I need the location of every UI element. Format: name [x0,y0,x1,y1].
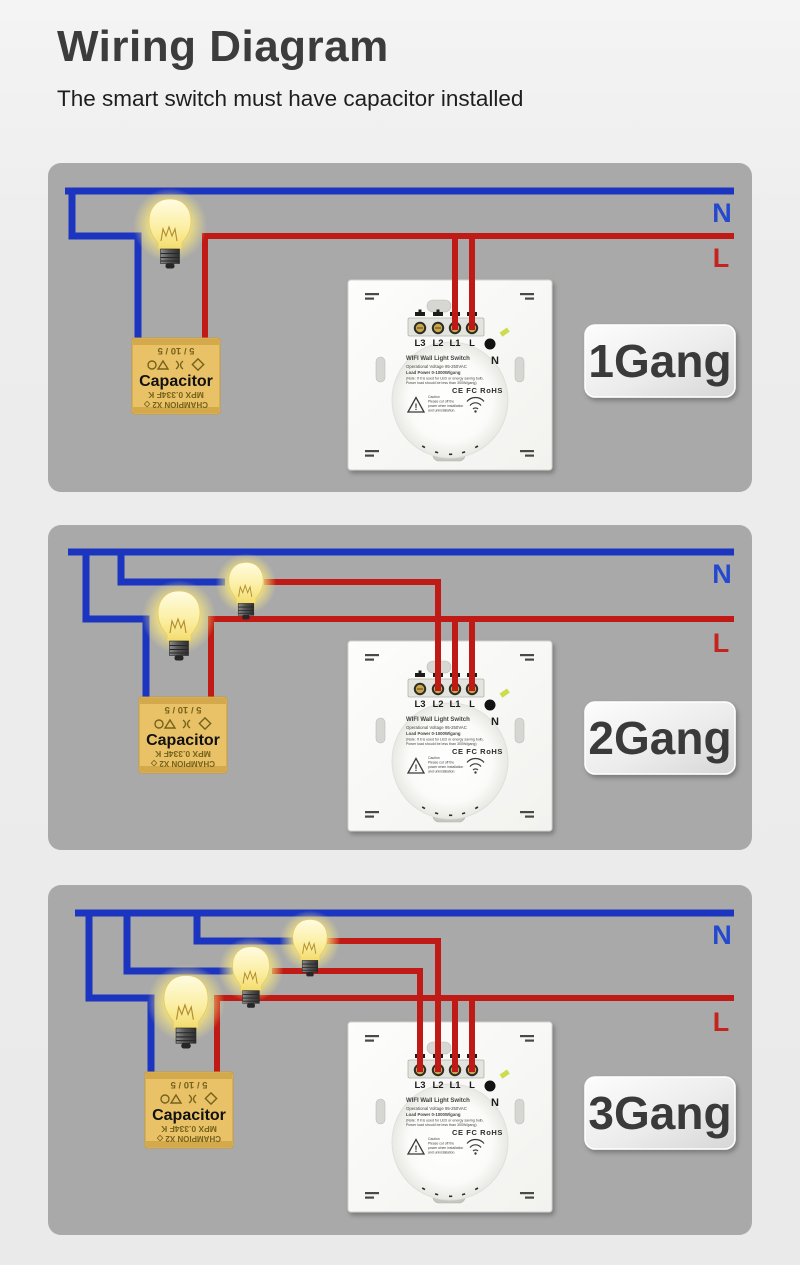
wiring-diagram-canvas: 5 / 10 / 5 Capacitor MPX 0.334F K CHAMPI… [0,0,800,1265]
neutral-label: N [712,920,732,950]
smart-switch [348,641,552,831]
gang-badge-label: 3Gang [588,1087,731,1139]
panel-2gang: N L 2Gang [48,525,752,850]
capacitor [132,338,220,414]
live-label: L [713,1007,730,1037]
gang-badge-label: 1Gang [588,335,731,387]
live-label: L [713,628,730,658]
capacitor [139,697,227,773]
gang-badge-label: 2Gang [588,712,731,764]
neutral-label: N [712,559,732,589]
gang-badge: 1Gang [585,325,735,397]
gang-badge: 2Gang [585,702,735,774]
gang-badge: 3Gang [585,1077,735,1149]
capacitor [145,1072,233,1148]
panel-1gang: N L 1Gang [48,163,752,492]
live-label: L [713,243,730,273]
panel-3gang: N L 3Gang [48,885,752,1235]
smart-switch [348,1022,552,1212]
neutral-label: N [712,198,732,228]
smart-switch [348,280,552,470]
